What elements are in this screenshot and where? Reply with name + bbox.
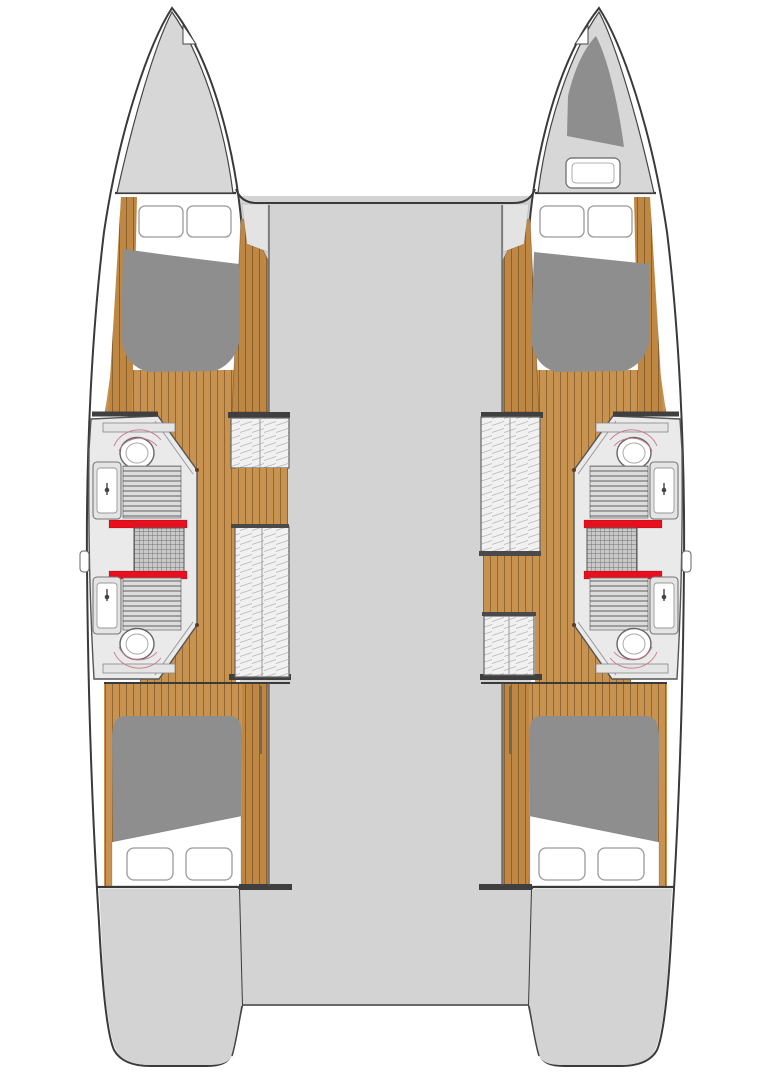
starboard-forward-wardrobe [479, 417, 541, 556]
port-aft-wardrobe [231, 524, 289, 677]
port-forward-bed-mattress [121, 249, 240, 372]
starboard-aft-wardrobe-top-bar [482, 612, 536, 616]
starboard-bow-hatch [566, 158, 620, 188]
starboard-forward-wardrobe-bottom-bar [479, 551, 541, 556]
starboard-forward-bed-mattress [531, 252, 650, 372]
port-wardrobe-gap-planks [236, 468, 288, 527]
starboard-aft-wardrobe [482, 612, 536, 675]
starboard-wardrobes [479, 417, 541, 675]
starboard-bow-fitting [575, 25, 588, 44]
catamaran-floor-plan: Top-view interior layout floor plan of a… [0, 0, 771, 1080]
port-aft-wardrobe-top-bar [231, 524, 289, 528]
port-forward-wardrobe [231, 418, 289, 468]
floor-plan-svg: Top-view interior layout floor plan of a… [0, 0, 771, 1080]
port-bow-fitting [183, 25, 196, 44]
starboard-wardrobe-gap-planks [483, 556, 539, 616]
port-wardrobes [231, 418, 289, 677]
